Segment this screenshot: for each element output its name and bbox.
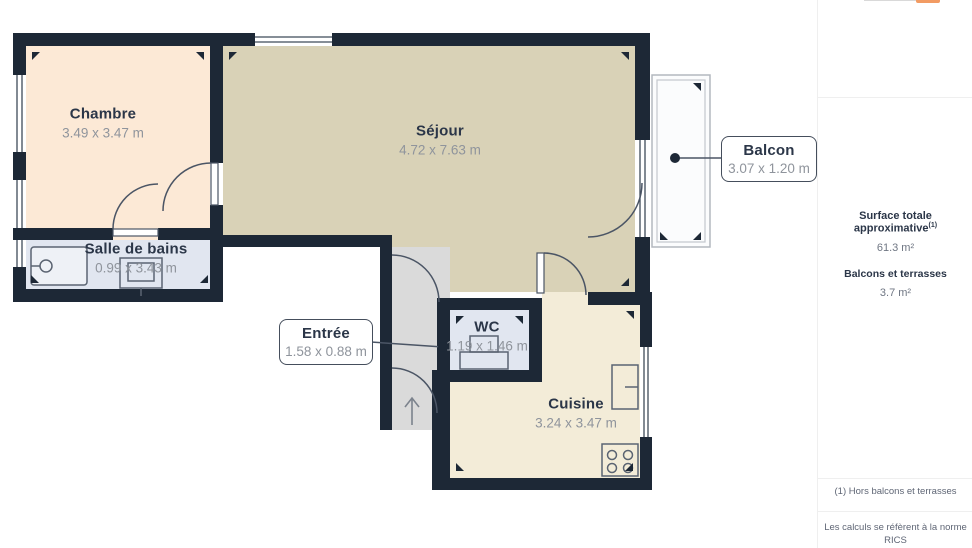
floorplan-page: Chambre 3.49 x 3.47 m Séjour 4.72 x 7.63…: [0, 0, 972, 548]
surface-total-value: 61.3 m²: [818, 242, 972, 254]
room-dims: 4.72 x 7.63 m: [399, 143, 481, 158]
surface-summary: Surface totale approximative(1) 61.3 m² …: [818, 210, 972, 299]
callout-dims: 1.58 x 0.88 m: [285, 344, 367, 359]
active-tab-indicator[interactable]: [916, 0, 940, 3]
room-dims: 1.19 x 1.46 m: [446, 339, 528, 354]
surface-total-label: Surface totale approximative: [854, 210, 932, 235]
cropped-control-line: [864, 0, 916, 1]
callout-entree: Entrée 1.58 x 0.88 m: [279, 319, 373, 365]
balconies-title: Balcons et terrasses: [818, 268, 972, 280]
sidebar-divider: [818, 97, 972, 98]
balconies-value: 3.7 m²: [818, 287, 972, 299]
room-title: WC: [446, 319, 528, 336]
room-dims: 0.99 x 3.43 m: [85, 261, 188, 276]
room-label-cuisine: Cuisine 3.24 x 3.47 m: [535, 396, 617, 431]
room-label-sejour: Séjour 4.72 x 7.63 m: [399, 123, 481, 158]
room-dims: 3.49 x 3.47 m: [62, 126, 144, 141]
room-label-wc: WC 1.19 x 1.46 m: [446, 319, 528, 354]
disclaimer-line: Les calculs se réfèrent à la norme RICS: [818, 521, 972, 547]
callout-dims: 3.07 x 1.20 m: [728, 161, 810, 176]
sidebar-divider: [818, 511, 972, 512]
sidebar-divider: [818, 478, 972, 479]
details-sidebar: Surface totale approximative(1) 61.3 m² …: [817, 0, 972, 548]
bathtub-icon: [31, 247, 87, 285]
surface-footnote-ref: (1): [929, 222, 938, 229]
callout-title: Entrée: [302, 325, 350, 342]
room-label-salle-de-bains: Salle de bains 0.99 x 3.43 m: [85, 241, 188, 276]
room-dims: 3.24 x 3.47 m: [535, 416, 617, 431]
callout-title: Balcon: [743, 142, 794, 159]
surface-total-title: Surface totale approximative(1): [818, 210, 972, 235]
footnote-text: (1) Hors balcons et terrasses: [818, 486, 972, 497]
balcony-structure: [652, 75, 710, 247]
disclaimer-text: Les calculs se réfèrent à la norme RICS …: [818, 521, 972, 548]
room-title: Cuisine: [535, 396, 617, 413]
room-label-chambre: Chambre 3.49 x 3.47 m: [62, 106, 144, 141]
room-title: Salle de bains: [85, 241, 188, 258]
room-title: Séjour: [399, 123, 481, 140]
callout-balcon: Balcon 3.07 x 1.20 m: [721, 136, 817, 182]
balcon-marker-dot: [670, 153, 680, 163]
room-title: Chambre: [62, 106, 144, 123]
